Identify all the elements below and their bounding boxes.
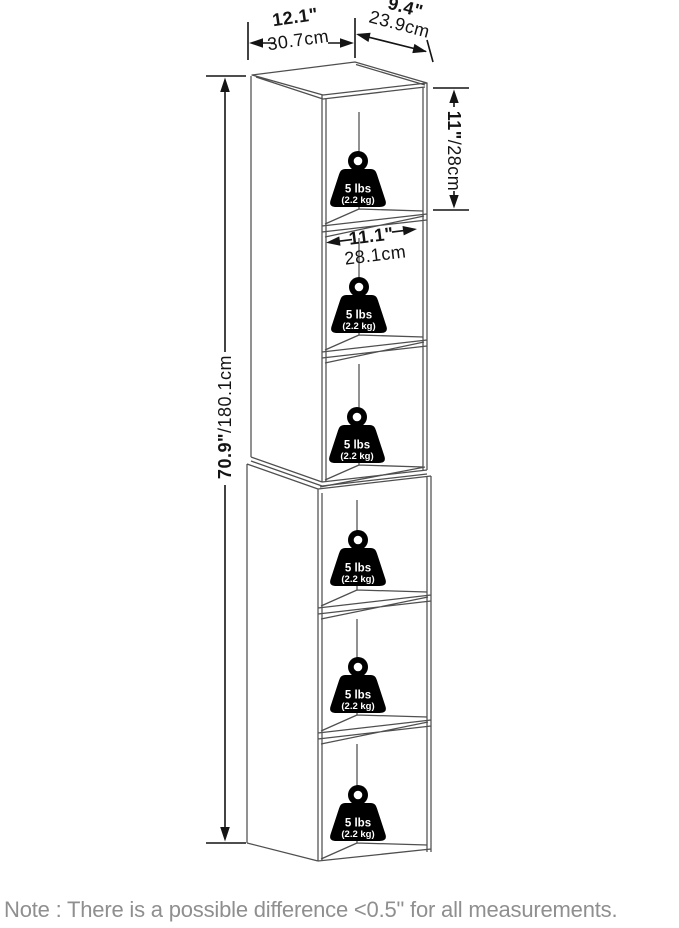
weight-capacity-icon: 5 lbs (2.2 kg): [331, 277, 387, 333]
weight-capacity-icon: 5 lbs (2.2 kg): [329, 407, 385, 463]
arrowhead-right: [340, 38, 354, 47]
weight-kg-label: (2.2 kg): [341, 829, 374, 840]
weight-capacity-icon: 5 lbs (2.2 kg): [330, 785, 386, 841]
measurement-note: Note : There is a possible difference <0…: [4, 897, 676, 923]
upper-unit-lines: [251, 62, 427, 486]
arrowhead-up: [220, 78, 230, 93]
weight-lbs-label: 5 lbs: [345, 690, 371, 702]
height-cm-label: /180.1cm: [215, 355, 235, 433]
weight-ring-hole: [354, 791, 363, 800]
arrowhead-left: [326, 236, 341, 245]
weight-ring-hole: [354, 536, 363, 545]
weight-kg-label: (2.2 kg): [341, 195, 374, 206]
arrowhead-left: [356, 33, 371, 42]
height-inches-label: 70.9": [215, 433, 235, 479]
cubby-height-label: 11"/28cm: [444, 111, 464, 192]
weight-kg-label: (2.2 kg): [342, 321, 375, 332]
weight-ring-hole: [353, 413, 362, 422]
weight-lbs-label: 5 lbs: [345, 184, 371, 196]
height-label: 70.9"/180.1cm: [215, 355, 235, 479]
weight-capacity-icon: 5 lbs (2.2 kg): [330, 151, 386, 207]
cubby-height-inches-label: 11": [444, 111, 464, 140]
weight-ring-hole: [354, 663, 363, 672]
weight-ring-hole: [355, 283, 364, 292]
lower-unit-lines: [247, 464, 431, 861]
weight-lbs-label: 5 lbs: [344, 440, 370, 452]
weight-lbs-label: 5 lbs: [345, 563, 371, 575]
weight-kg-label: (2.2 kg): [340, 451, 373, 462]
arrowhead-left: [249, 38, 263, 47]
arrowhead-down: [449, 195, 458, 209]
weight-capacity-icon: 5 lbs (2.2 kg): [330, 657, 386, 713]
cubby-height-cm-label: /28cm: [444, 140, 464, 192]
width-cm-label: 30.7cm: [266, 26, 330, 54]
weight-kg-label: (2.2 kg): [341, 701, 374, 712]
arrowhead-up: [449, 90, 458, 104]
width-inches-label: 12.1": [271, 4, 319, 30]
weight-lbs-label: 5 lbs: [346, 310, 372, 322]
cubby-height-dimension: 11"/28cm: [433, 88, 469, 210]
overall-width-dimension: 12.1" 30.7cm: [248, 4, 355, 60]
overall-height-dimension: 70.9"/180.1cm: [206, 76, 246, 843]
arrowhead-down: [220, 827, 230, 842]
arrowhead-right: [403, 226, 418, 235]
weight-kg-label: (2.2 kg): [341, 574, 374, 585]
weight-ring-hole: [354, 157, 363, 166]
weight-lbs-label: 5 lbs: [345, 818, 371, 830]
arrowhead-right: [412, 44, 427, 53]
bookcase-diagram-canvas: 5 lbs (2.2 kg) 5 lbs (2.2 kg) 5 lbs (2.2…: [0, 0, 679, 928]
product-dimension-diagram: 5 lbs (2.2 kg) 5 lbs (2.2 kg) 5 lbs (2.2…: [0, 0, 679, 928]
weight-capacity-icon: 5 lbs (2.2 kg): [330, 530, 386, 586]
overall-depth-dimension: 9.4" 23.9cm: [356, 0, 433, 62]
